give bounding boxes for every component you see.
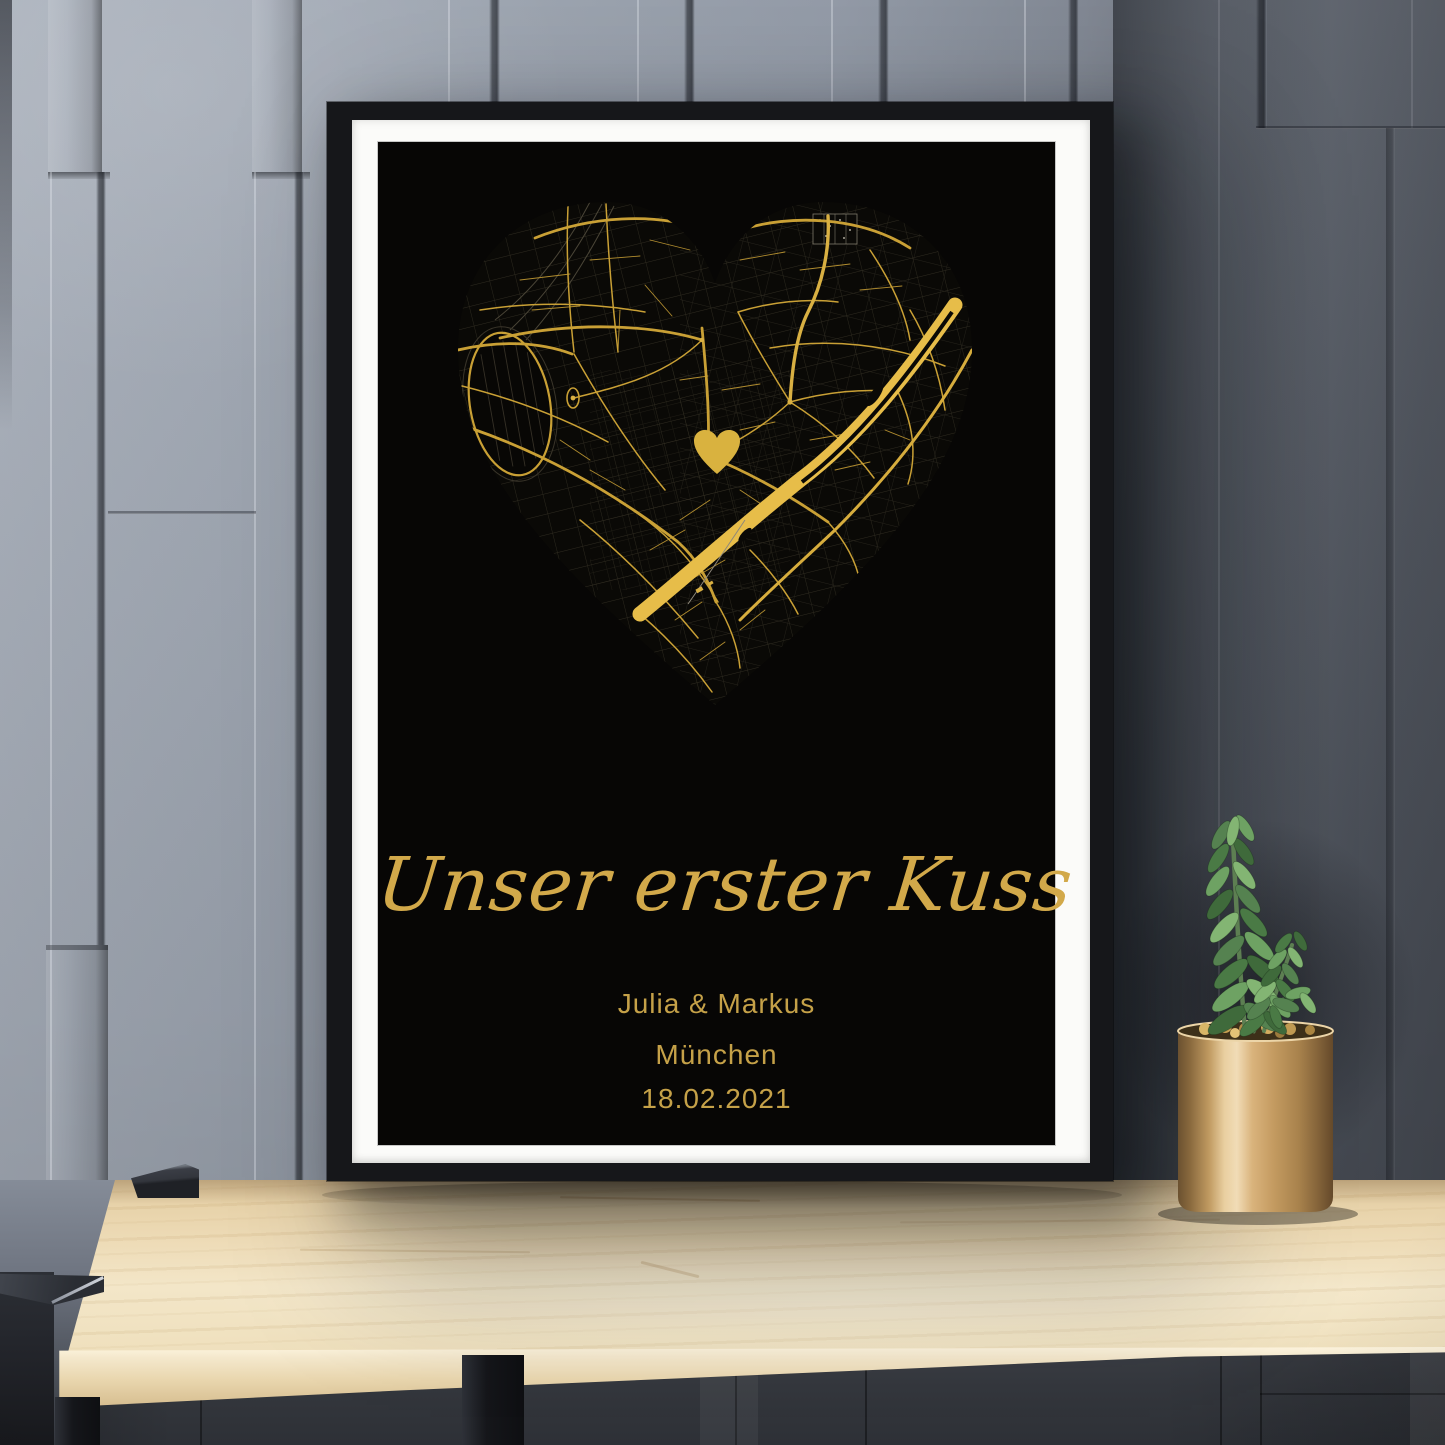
wall-groove [637, 0, 639, 112]
wall-batten [252, 0, 302, 172]
plant-leaves [1202, 812, 1319, 1040]
wall-seam [108, 511, 256, 514]
wall-edge-strip [0, 0, 12, 430]
poster-date: 18.02.2021 [378, 1083, 1055, 1115]
wall-batten [46, 945, 108, 1185]
wall-groove [1256, 0, 1267, 128]
frame-mat: Unser erster Kuss Julia & Markus München… [352, 120, 1090, 1163]
table-leg [462, 1355, 524, 1445]
wall-seam [1256, 126, 1445, 129]
table-leg [55, 1397, 100, 1445]
heart-map [440, 190, 990, 745]
scene: Unser erster Kuss Julia & Markus München… [0, 0, 1445, 1445]
wall-groove [294, 172, 304, 1180]
poster-city: München [378, 1039, 1055, 1071]
poster: Unser erster Kuss Julia & Markus München… [378, 142, 1055, 1145]
wall-groove [878, 0, 889, 112]
poster-title: Unser erster Kuss [373, 842, 1059, 928]
wall-seam [1260, 1393, 1445, 1395]
wall-groove [489, 0, 500, 112]
gold-pot [1178, 1019, 1333, 1212]
poster-frame: Unser erster Kuss Julia & Markus München… [327, 102, 1113, 1181]
wall-groove [1411, 0, 1413, 128]
wall-groove [1024, 0, 1026, 112]
wall-groove [684, 0, 695, 112]
wall-groove [831, 0, 833, 112]
wood-grain [641, 1261, 700, 1278]
wall-groove [96, 172, 106, 945]
frame-shadow [322, 1181, 1122, 1209]
wood-grain [300, 1249, 530, 1253]
wall-groove [254, 172, 256, 1180]
wall-groove [1386, 128, 1395, 1180]
map-block [813, 214, 857, 244]
potted-plant [1040, 805, 1380, 1235]
poster-names: Julia & Markus [378, 988, 1055, 1020]
wall-groove [448, 0, 450, 112]
wall-batten [48, 0, 102, 172]
wall-groove [1068, 0, 1079, 112]
